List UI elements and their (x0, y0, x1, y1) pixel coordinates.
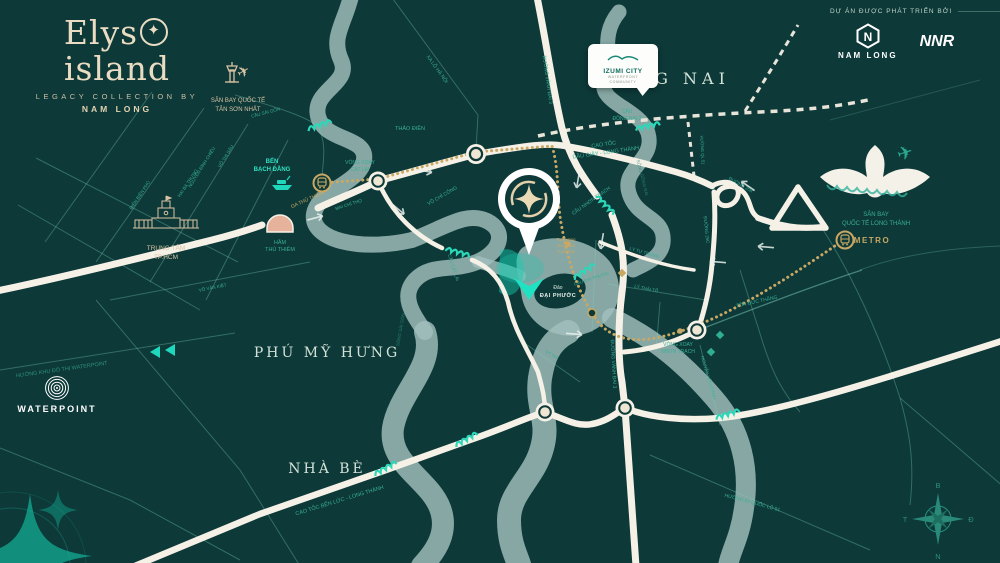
vong-xoay-nhon-trach-label-2: NHƠN TRẠCH (661, 349, 695, 355)
bridge-label-cau-dong-nai-2-line1: CẦU (622, 108, 633, 115)
metro-station-dot (588, 309, 596, 317)
developer-heading: DỰ ÁN ĐƯỢC PHÁT TRIỂN BỞI (830, 8, 952, 15)
ben-bach-dang-label-1: BẾN (266, 158, 279, 165)
logo-text-part1: Elys (64, 13, 138, 52)
hcmc-center-label-2: TP.HCM (154, 254, 178, 261)
area-label-phu-my-hung: PHÚ MỸ HƯNG (254, 343, 400, 361)
lt-airport-label-2: QUỐC TẾ LONG THÀNH (842, 220, 910, 227)
logo-wordmark: Elys✦island (22, 16, 212, 86)
compass-north-label: B (935, 481, 940, 490)
ham-thu-thiem-label-1: HẦM (274, 239, 287, 246)
izumi-subtitle-2: COMMUNITY (590, 80, 656, 85)
golf-club-label-2: Jeongsan (557, 243, 576, 248)
nam-long-initial: N (863, 30, 872, 44)
ben-bach-dang-label-2: BẠCH ĐẰNG (254, 165, 291, 173)
logo-text-part2: island (64, 49, 170, 88)
logo-star-icon: ✦ (140, 18, 168, 46)
izumi-title: IZUMI CITY (590, 68, 656, 75)
elyse-island-logo: Elys✦island LEGACY COLLECTION BY NAM LON… (22, 16, 212, 114)
vong-xoay-nhon-trach-label-1: VÒNG XOAY (663, 341, 693, 348)
developer-block: DỰ ÁN ĐƯỢC PHÁT TRIỂN BỞI N NAM LONG NNR (830, 8, 1000, 60)
golf-club-label-3: Golf Club (557, 249, 575, 254)
logo-brand-name: NAM LONG (22, 104, 212, 114)
nam-long-hexagon-icon: N (855, 23, 881, 49)
island-label-dao: Đảo (553, 285, 562, 291)
nnr-logo: NNR (920, 33, 955, 51)
heading-rule (958, 11, 1000, 12)
nam-long-logo: N NAM LONG (838, 23, 898, 60)
waterpoint-label: WATERPOINT (17, 404, 96, 414)
compass-east-label: Đ (968, 515, 974, 524)
izumi-city-callout: IZUMI CITY WATERFRONT COMMUNITY (588, 44, 658, 88)
map-canvas: ✈ ✈ (0, 0, 1000, 563)
golf-club-label-1: Taekwang (557, 237, 577, 242)
hcmc-center-label-1: TRUNG TÂM (147, 243, 186, 252)
tsn-airport-label-2: TÂN SƠN NHẤT (215, 106, 260, 113)
bridge-label-cau-dong-nai-2-line2: ĐỒNG NAI 2 (613, 115, 642, 122)
area-label-thao-dien: THẢO ĐIỀN (395, 125, 425, 132)
vong-xoay-cat-lai-label-2: CÁT LÁI (351, 166, 370, 173)
izumi-mountain-icon (606, 52, 640, 62)
metro-icon-long-thanh (837, 232, 854, 249)
island-label-dai-phuoc: ĐẠI PHƯỚC (540, 291, 576, 299)
nam-long-label: NAM LONG (838, 51, 898, 60)
logo-tagline: LEGACY COLLECTION BY (22, 92, 212, 101)
compass-south-label: N (935, 552, 940, 561)
area-label-nha-be: NHÀ BÈ (288, 459, 366, 477)
compass-west-label: T (903, 515, 908, 524)
metro-icon-thu-thiem (314, 175, 331, 192)
ham-thu-thiem-label-2: THỦ THIÊM (265, 245, 295, 253)
metro-station-dot (677, 328, 683, 334)
metro-label: METRO (854, 236, 890, 245)
lt-airport-label-1: SÂN BAY (863, 211, 889, 218)
tsn-airport-label-1: SÂN BAY QUỐC TẾ (211, 97, 265, 104)
vong-xoay-cat-lai-label-1: VÒNG XOAY (345, 159, 375, 166)
